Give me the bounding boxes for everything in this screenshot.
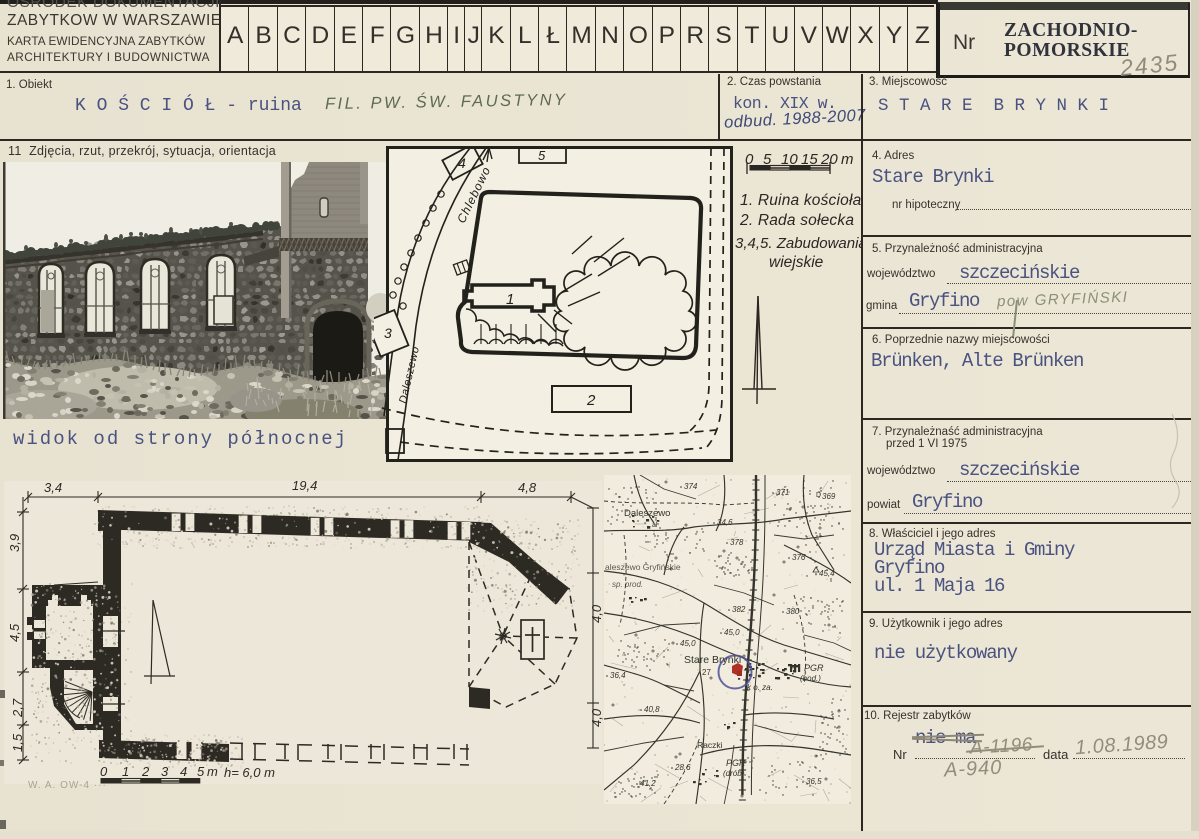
svg-text:376: 376 xyxy=(792,553,806,562)
svg-text:28,6: 28,6 xyxy=(674,763,691,772)
svg-text:371: 371 xyxy=(776,488,789,497)
svg-text:5: 5 xyxy=(538,148,546,163)
svg-text:5: 5 xyxy=(197,764,205,779)
svg-text:4,5: 4,5 xyxy=(7,623,22,642)
svg-text:45,4: 45,4 xyxy=(819,569,835,578)
svg-text:40,8: 40,8 xyxy=(644,705,660,714)
svg-text:0: 0 xyxy=(100,764,108,779)
svg-text:3,9: 3,9 xyxy=(7,534,22,552)
svg-text:Raczki: Raczki xyxy=(697,740,723,750)
svg-text:PGR: PGR xyxy=(804,663,824,673)
svg-text:36,4: 36,4 xyxy=(610,671,626,680)
svg-text:3,4,5. Zabudowania: 3,4,5. Zabudowania xyxy=(735,235,862,252)
svg-text:4: 4 xyxy=(458,155,466,171)
svg-text:27: 27 xyxy=(702,668,711,677)
svg-text:m: m xyxy=(841,151,854,168)
svg-text:2. Rada sołecka: 2. Rada sołecka xyxy=(739,212,854,229)
svg-text:369: 369 xyxy=(822,492,836,501)
svg-text:2: 2 xyxy=(586,392,596,409)
svg-text:h= 6,0 m: h= 6,0 m xyxy=(224,765,275,780)
svg-text:4,0: 4,0 xyxy=(589,708,604,727)
svg-text:3: 3 xyxy=(384,325,392,341)
svg-text:al: al xyxy=(652,522,658,529)
svg-text:1. Ruina kościoła: 1. Ruina kościoła xyxy=(740,192,862,209)
svg-text:1: 1 xyxy=(506,291,514,308)
svg-text:4,8: 4,8 xyxy=(518,480,537,495)
svg-text:34,6: 34,6 xyxy=(717,518,733,527)
svg-text:Stare Brynki: Stare Brynki xyxy=(684,654,741,666)
svg-text:Daleszewo: Daleszewo xyxy=(624,508,670,519)
svg-text:2,7: 2,7 xyxy=(10,698,25,718)
svg-text:4,0: 4,0 xyxy=(589,604,604,623)
svg-text:2: 2 xyxy=(141,764,150,779)
svg-text:374: 374 xyxy=(684,482,698,491)
svg-text:36,5: 36,5 xyxy=(806,777,822,786)
svg-text:382: 382 xyxy=(732,605,746,614)
svg-text:1,5: 1,5 xyxy=(10,733,25,752)
svg-text:aleszewo Gryfińskie: aleszewo Gryfińskie xyxy=(605,562,681,572)
svg-text:378: 378 xyxy=(730,538,744,547)
svg-text:19,4: 19,4 xyxy=(292,478,317,493)
svg-text:41,2: 41,2 xyxy=(640,779,656,788)
svg-text:m: m xyxy=(207,764,218,779)
svg-text:45,0: 45,0 xyxy=(680,639,696,648)
svg-text:3,4: 3,4 xyxy=(44,480,62,495)
svg-text:wiejskie: wiejskie xyxy=(769,254,824,271)
svg-text:3: 3 xyxy=(161,764,169,779)
svg-text:4: 4 xyxy=(180,764,187,779)
svg-text:PGR: PGR xyxy=(726,758,746,768)
svg-text:(drób): (drób) xyxy=(723,769,745,778)
svg-text:sp. prod.: sp. prod. xyxy=(612,580,643,589)
svg-text:45,0: 45,0 xyxy=(724,628,740,637)
svg-text:380: 380 xyxy=(786,607,800,616)
svg-text:(hod.): (hod.) xyxy=(800,674,821,683)
svg-text:1: 1 xyxy=(122,764,129,779)
svg-text:k o. za.: k o. za. xyxy=(747,683,773,692)
